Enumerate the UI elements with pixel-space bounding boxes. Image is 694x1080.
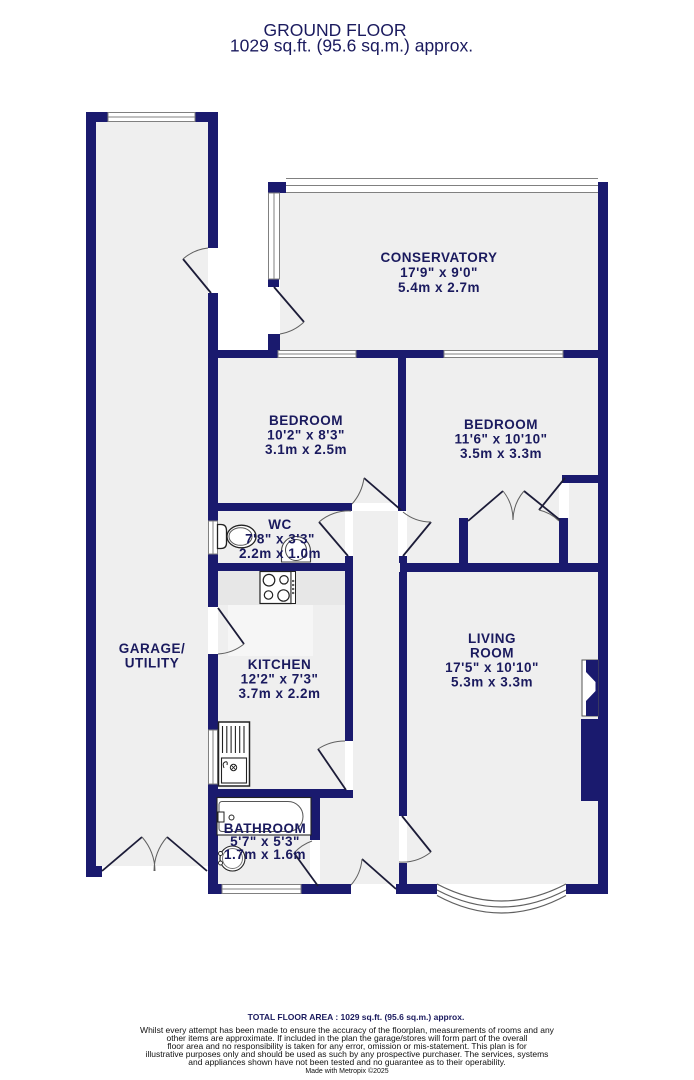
svg-text:1.7m x 1.6m: 1.7m x 1.6m (224, 847, 306, 862)
svg-text:CONSERVATORY: CONSERVATORY (380, 250, 497, 265)
svg-text:Made with Metropix ©2025: Made with Metropix ©2025 (305, 1067, 388, 1075)
svg-text:KITCHEN: KITCHEN (248, 657, 312, 672)
svg-text:GARAGE/: GARAGE/ (119, 641, 186, 656)
svg-text:11'6" x 10'10": 11'6" x 10'10" (454, 432, 547, 447)
svg-text:TOTAL FLOOR AREA : 1029 sq.ft.: TOTAL FLOOR AREA : 1029 sq.ft. (95.6 sq.… (248, 1012, 465, 1022)
svg-text:3.7m x 2.2m: 3.7m x 2.2m (238, 686, 320, 701)
svg-text:BEDROOM: BEDROOM (464, 417, 538, 432)
svg-text:LIVING: LIVING (468, 631, 516, 646)
svg-text:1029 sq.ft. (95.6 sq.m.) appro: 1029 sq.ft. (95.6 sq.m.) approx. (230, 36, 473, 56)
svg-text:12'2" x 7'3": 12'2" x 7'3" (241, 672, 319, 687)
svg-text:10'2" x 8'3": 10'2" x 8'3" (267, 428, 345, 443)
svg-text:BEDROOM: BEDROOM (269, 413, 343, 428)
svg-text:3.5m x 3.3m: 3.5m x 3.3m (460, 446, 542, 461)
svg-text:WC: WC (268, 517, 292, 532)
svg-text:and appliances shown have not: and appliances shown have not been teste… (188, 1057, 505, 1067)
svg-text:ROOM: ROOM (470, 646, 514, 661)
svg-text:5.3m x 3.3m: 5.3m x 3.3m (451, 675, 533, 690)
svg-text:3.1m x 2.5m: 3.1m x 2.5m (265, 442, 347, 457)
svg-text:UTILITY: UTILITY (125, 656, 180, 671)
svg-text:5.4m x 2.7m: 5.4m x 2.7m (398, 280, 480, 295)
svg-text:7'8" x 3'3": 7'8" x 3'3" (245, 532, 315, 547)
svg-text:17'5" x 10'10": 17'5" x 10'10" (445, 660, 539, 675)
svg-text:2.2m x 1.0m: 2.2m x 1.0m (239, 546, 321, 561)
svg-text:17'9" x 9'0": 17'9" x 9'0" (400, 265, 478, 280)
